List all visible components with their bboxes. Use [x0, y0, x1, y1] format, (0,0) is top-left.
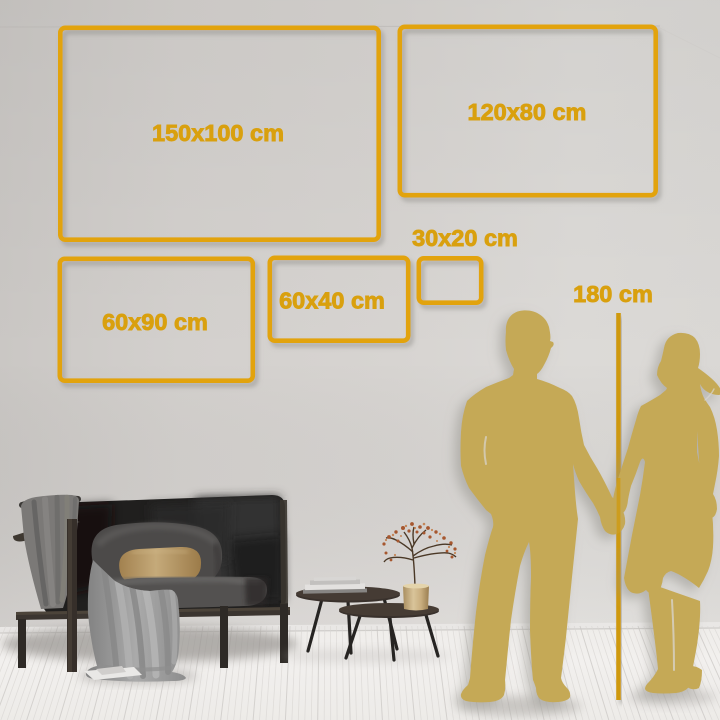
svg-text:60x90 cm: 60x90 cm: [102, 309, 208, 335]
svg-text:120x80 cm: 120x80 cm: [468, 99, 587, 125]
svg-text:180 cm: 180 cm: [573, 281, 653, 307]
svg-text:150x100 cm: 150x100 cm: [152, 120, 284, 146]
svg-text:60x40 cm: 60x40 cm: [279, 288, 385, 314]
svg-text:30x20 cm: 30x20 cm: [412, 225, 518, 251]
